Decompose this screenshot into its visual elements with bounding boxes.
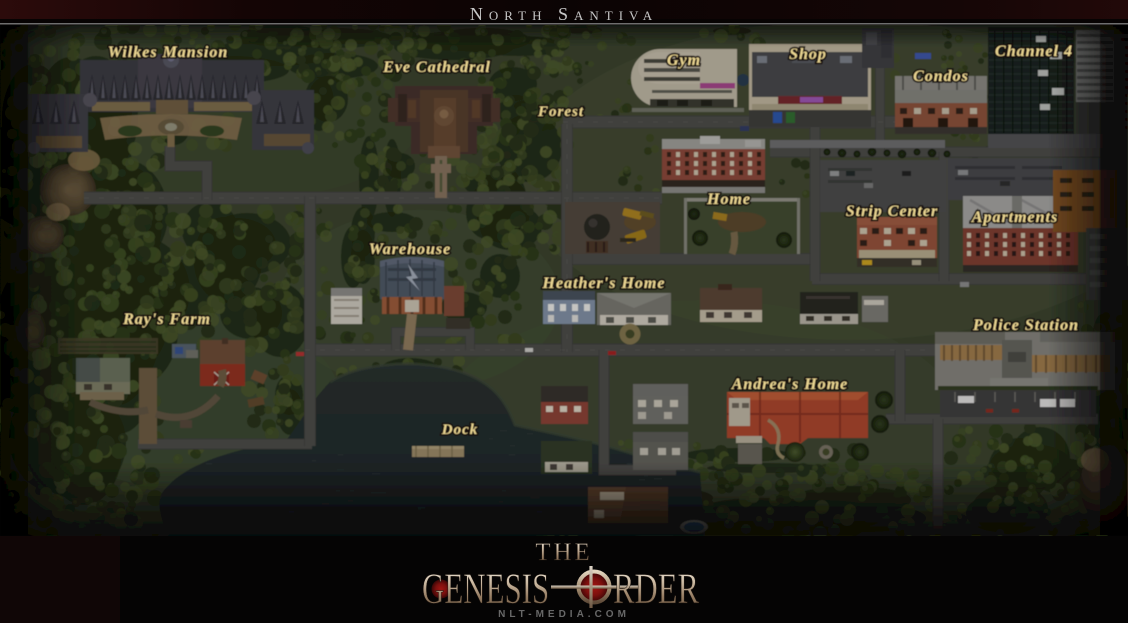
svg-text:Dock: Dock [441,422,479,438]
svg-text:Eve Cathedral: Eve Cathedral [382,59,491,76]
svg-text:Gym: Gym [667,52,701,69]
svg-text:Condos: Condos [913,68,969,85]
svg-text:Ray's Farm: Ray's Farm [122,311,211,328]
svg-text:THE: THE [535,539,593,566]
svg-text:Shop: Shop [789,46,827,63]
svg-text:Home: Home [706,191,751,208]
svg-text:Police Station: Police Station [972,317,1079,334]
svg-text:Forest: Forest [537,104,584,120]
svg-text:Heather's Home: Heather's Home [542,275,666,292]
svg-text:Wilkes Mansion: Wilkes Mansion [108,44,229,61]
svg-text:Andrea's Home: Andrea's Home [731,376,849,393]
svg-text:NLT-MEDIA.COM: NLT-MEDIA.COM [498,609,630,620]
svg-text:Apartments: Apartments [971,209,1058,226]
svg-text:RDER: RDER [613,566,700,614]
svg-text:Channel 4: Channel 4 [995,43,1073,60]
svg-text:North Santiva: North Santiva [470,4,658,24]
svg-text:Warehouse: Warehouse [369,241,452,258]
svg-text:Strip Center: Strip Center [846,203,938,220]
svg-text:GENESIS: GENESIS [422,566,549,613]
